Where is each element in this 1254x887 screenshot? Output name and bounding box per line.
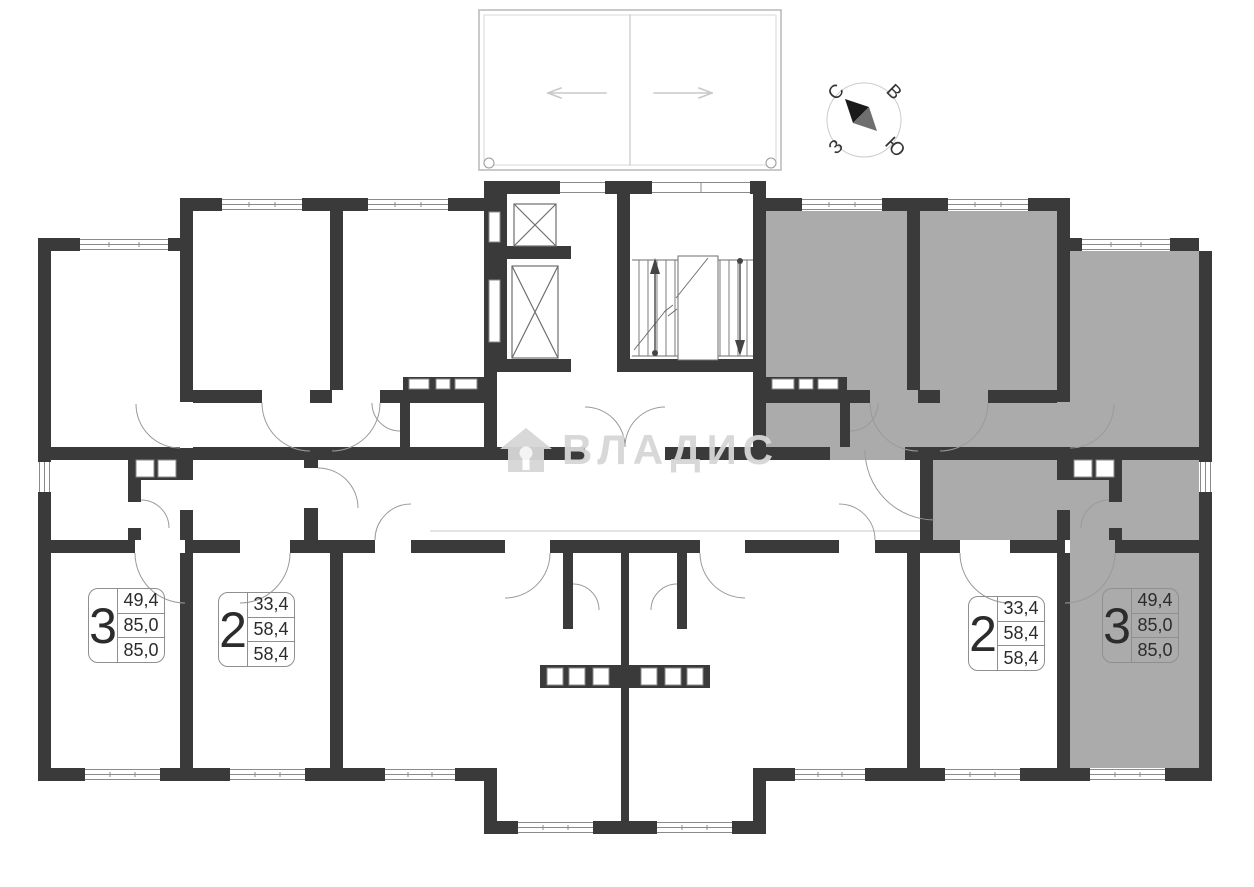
area-value: 49,4 — [1132, 589, 1178, 613]
apartment-rooms-count: 2 — [219, 593, 248, 666]
area-value: 58,4 — [248, 617, 294, 643]
area-value: 85,0 — [1132, 613, 1178, 639]
compass-label-north: С — [824, 80, 849, 105]
area-value: 58,4 — [248, 642, 294, 666]
apartment-areas: 33,4 58,4 58,4 — [248, 593, 294, 666]
floor-plan-drawing: С В З Ю — [0, 0, 1254, 887]
area-value: 49,4 — [118, 589, 164, 613]
apartment-label-2-rooms-left: 2 33,4 58,4 58,4 — [218, 592, 295, 667]
staircase — [632, 256, 753, 360]
area-value: 58,4 — [998, 621, 1044, 647]
elevator-shafts — [512, 204, 558, 358]
apartment-rooms-count: 2 — [969, 597, 998, 670]
highlighted-apartment — [766, 198, 1199, 768]
apartment-areas: 49,4 85,0 85,0 — [118, 589, 164, 662]
area-value: 33,4 — [248, 593, 294, 617]
apartment-areas: 33,4 58,4 58,4 — [998, 597, 1044, 670]
compass: С В З Ю — [824, 80, 909, 161]
compass-label-south: Ю — [880, 133, 908, 161]
apartment-label-3-rooms-right-highlighted: 3 49,4 85,0 85,0 — [1102, 588, 1179, 663]
area-value: 85,0 — [1132, 638, 1178, 662]
compass-label-east: В — [882, 80, 906, 104]
apartment-rooms-count: 3 — [1103, 589, 1132, 662]
area-value: 33,4 — [998, 597, 1044, 621]
apartment-rooms-count: 3 — [89, 589, 118, 662]
apartment-label-2-rooms-right: 2 33,4 58,4 58,4 — [968, 596, 1045, 671]
apartment-areas: 49,4 85,0 85,0 — [1132, 589, 1178, 662]
stair-down-arrow — [735, 340, 745, 356]
compass-label-west: З — [825, 136, 848, 159]
apartment-label-3-rooms-left: 3 49,4 85,0 85,0 — [88, 588, 165, 663]
area-value: 58,4 — [998, 646, 1044, 670]
balcony — [479, 10, 781, 170]
area-value: 85,0 — [118, 638, 164, 662]
area-value: 85,0 — [118, 613, 164, 639]
floor-plan-page: С В З Ю 3 49,4 85,0 85,0 2 33,4 58,4 58,… — [0, 0, 1254, 887]
